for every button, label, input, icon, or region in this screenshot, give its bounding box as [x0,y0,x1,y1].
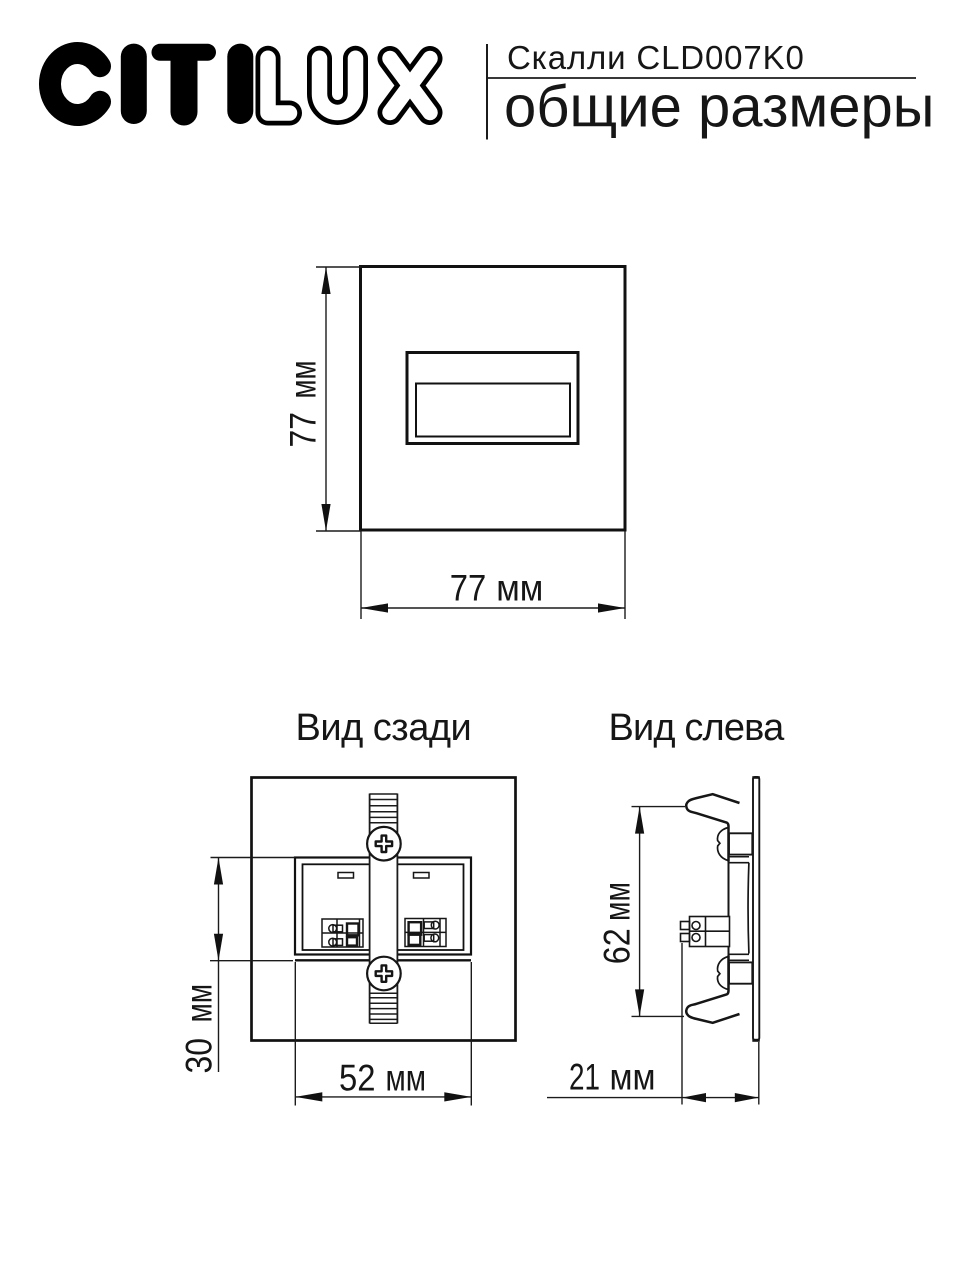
svg-text:мм: мм [496,567,543,609]
svg-text:Вид сзади: Вид сзади [296,707,472,749]
svg-text:Вид слева: Вид слева [609,707,786,749]
svg-text:30: 30 [178,1038,220,1074]
svg-text:21: 21 [569,1056,600,1098]
svg-text:77: 77 [450,567,487,609]
svg-text:мм: мм [596,882,638,921]
svg-text:мм: мм [386,1057,427,1099]
svg-text:62: 62 [596,928,638,964]
svg-text:Скалли CLD007K0: Скалли CLD007K0 [507,39,805,76]
svg-text:мм: мм [282,361,324,399]
svg-text:52: 52 [339,1057,376,1099]
svg-text:мм: мм [178,984,220,1023]
svg-text:77: 77 [282,412,324,448]
svg-text:мм: мм [610,1056,656,1098]
svg-text:общие размеры: общие размеры [504,75,935,140]
